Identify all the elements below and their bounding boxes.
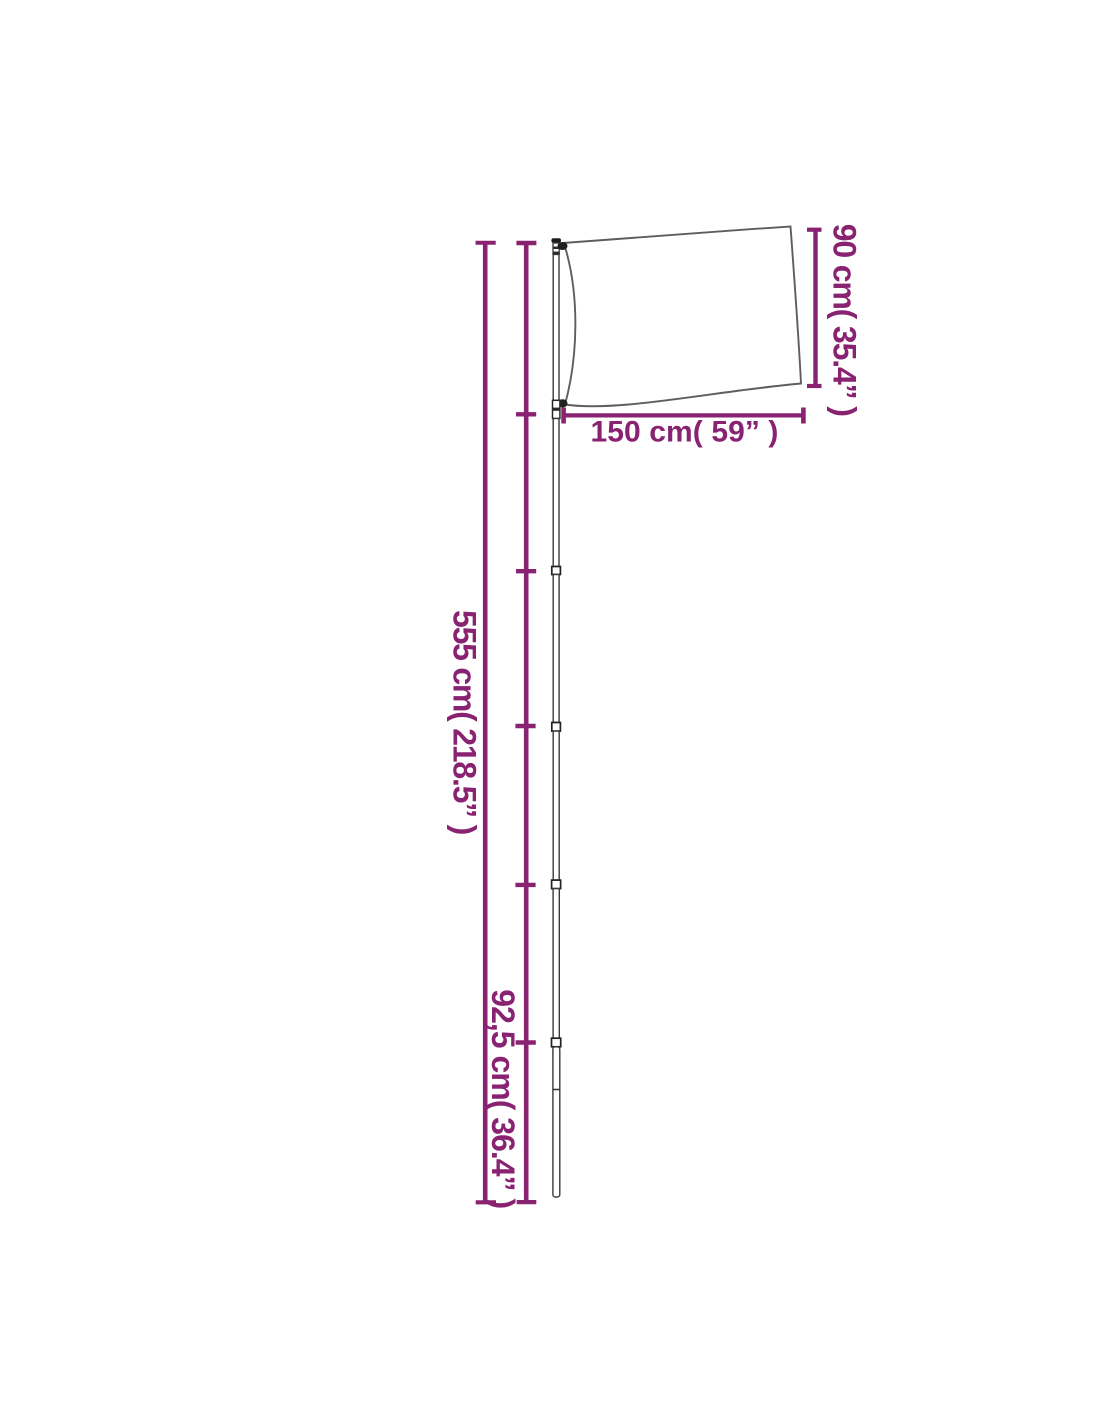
svg-text:150 cm( 59” ): 150 cm( 59” ) — [590, 416, 778, 449]
svg-text:92,5 cm( 36.4” ): 92,5 cm( 36.4” ) — [485, 989, 521, 1208]
svg-text:555 cm( 218.5” ): 555 cm( 218.5” ) — [447, 610, 483, 835]
svg-text:90 cm( 35.4” ): 90 cm( 35.4” ) — [827, 224, 863, 417]
